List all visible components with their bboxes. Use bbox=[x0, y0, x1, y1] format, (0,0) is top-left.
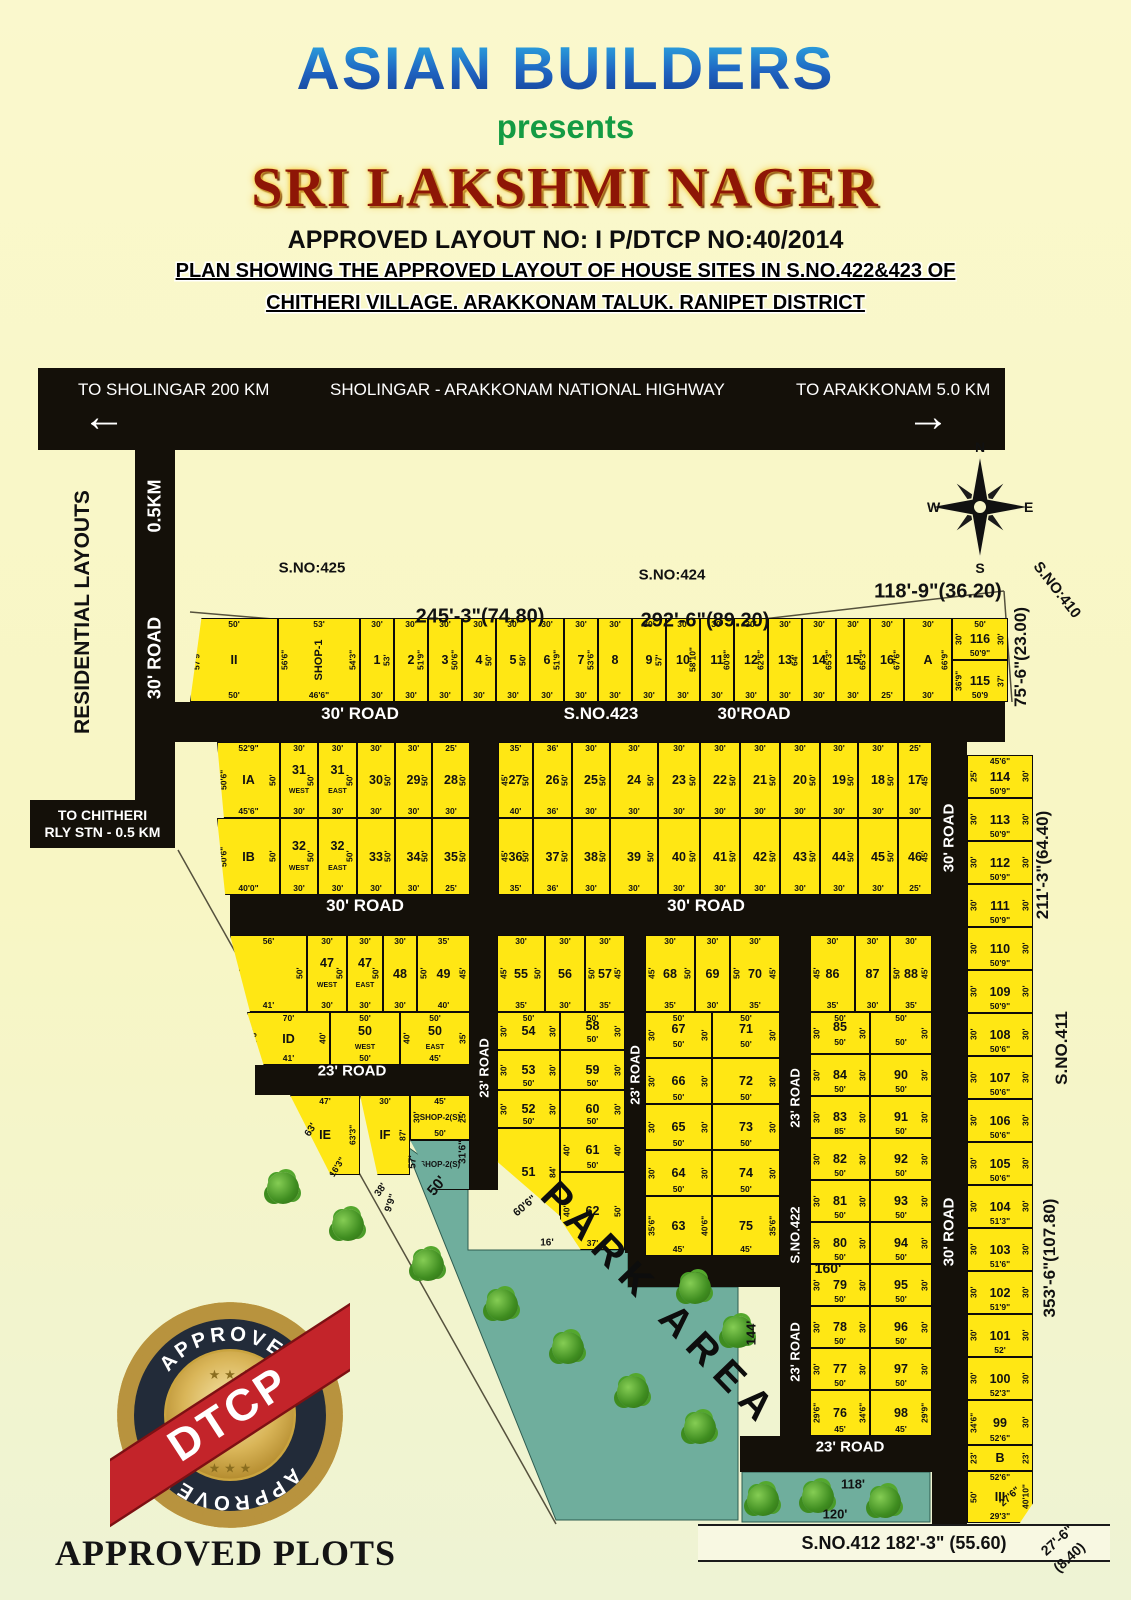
map-label: 120' bbox=[823, 1507, 848, 1522]
plot-42: 30'50'42 bbox=[740, 818, 780, 895]
map-label: 23' ROAD bbox=[477, 1038, 492, 1097]
plot-15: 30'30'65'3"15 bbox=[836, 618, 870, 702]
svg-text:S: S bbox=[975, 560, 984, 574]
plot-21: 30'30'50'21 bbox=[740, 742, 780, 818]
tree-icon bbox=[869, 1486, 901, 1518]
tree-icon bbox=[617, 1376, 649, 1408]
svg-text:E: E bbox=[1024, 499, 1033, 515]
plot-96: 50'30'96 bbox=[870, 1306, 932, 1348]
plot-60: 50'30'60 bbox=[560, 1090, 625, 1128]
plot-94: 50'30'94 bbox=[870, 1222, 932, 1264]
plot-IB: 40'0"50'6"50'IB bbox=[217, 818, 280, 895]
plot-64: 50'30'30'64 bbox=[645, 1150, 712, 1196]
plot-83: 85'30'30'83 bbox=[810, 1096, 870, 1138]
plot-2: 30'30'51'9"2 bbox=[394, 618, 428, 702]
tree-icon bbox=[486, 1289, 518, 1321]
plot-73: 50'30'73 bbox=[712, 1104, 780, 1150]
map-label: 118'-9"(36.20) bbox=[874, 581, 1002, 604]
map-label: 57' bbox=[408, 1155, 419, 1169]
layout-poster: ASIAN BUILDERS presents SRI LAKSHMI NAGE… bbox=[0, 0, 1131, 1600]
plot-24: 30'30'50'24 bbox=[610, 742, 658, 818]
plot-18: 30'30'50'18 bbox=[858, 742, 898, 818]
plot-SHOP-1: 53'46'6"56'6"54'3"SHOP-1 bbox=[278, 618, 360, 702]
plot-76: 45'29'6"34'6"76 bbox=[810, 1390, 870, 1436]
plot-32-west: 30'50'32WEST bbox=[280, 818, 318, 895]
plot-46: 25'45'46 bbox=[898, 818, 932, 895]
plot-98: 45'29'9"98 bbox=[870, 1390, 932, 1436]
map-label: 0.5KM bbox=[145, 479, 166, 532]
plot-44: 30'50'44 bbox=[820, 818, 858, 895]
map-label: 23' ROAD bbox=[318, 1063, 387, 1080]
map-label: 160' bbox=[815, 1260, 842, 1276]
map-label: 23' ROAD bbox=[628, 1045, 643, 1104]
plot-65: 50'30'30'65 bbox=[645, 1104, 712, 1150]
road-segment bbox=[470, 742, 498, 1190]
map-label: 30' ROAD bbox=[326, 896, 404, 916]
plot-31-east: 30'30'50'31EAST bbox=[318, 742, 357, 818]
map-label: 245'-3"(74.80) bbox=[416, 606, 545, 629]
plot-48: 30'30'48 bbox=[383, 935, 417, 1012]
plot-84: 50'30'30'84 bbox=[810, 1054, 870, 1096]
compass-rose-icon: N S W E bbox=[925, 442, 1035, 574]
plot-8: 30'30'8 bbox=[598, 618, 632, 702]
plot-85: 50'30'30'8550' bbox=[810, 1012, 870, 1054]
svg-text:W: W bbox=[927, 499, 941, 515]
plot-81: 50'30'30'81 bbox=[810, 1180, 870, 1222]
map-label: 211'-3"(64.40) bbox=[1033, 811, 1053, 920]
plot-5: 30'30'50'5 bbox=[496, 618, 530, 702]
plot-31-west: 30'30'50'31WEST bbox=[280, 742, 318, 818]
tree-icon bbox=[332, 1209, 364, 1241]
plot-57: 30'35'50'45'57 bbox=[585, 935, 625, 1012]
map-label: 30' ROAD bbox=[667, 896, 745, 916]
plot-97: 50'30'97 bbox=[870, 1348, 932, 1390]
map-label: 16' bbox=[540, 1238, 554, 1249]
svg-text:★ ★ ★: ★ ★ ★ bbox=[209, 1461, 252, 1476]
plot-59: 50'30'59 bbox=[560, 1050, 625, 1090]
plot-90: 50'30'90 bbox=[870, 1054, 932, 1096]
map-label: S.NO.422 bbox=[788, 1206, 803, 1263]
plot-69: 30'30'69 bbox=[695, 935, 730, 1012]
plot-A: 30'30'66'9"A bbox=[904, 618, 952, 702]
plot-110: 50'9"30'30'110 bbox=[967, 927, 1033, 970]
plot-115: 50'936'9"37'115 bbox=[952, 660, 1008, 702]
plot-108: 50'6"30'30'108 bbox=[967, 1013, 1033, 1056]
plot-80: 50'30'30'80 bbox=[810, 1222, 870, 1264]
map-label: 118' bbox=[841, 1477, 865, 1492]
plot-27: 35'40'45'50'27 bbox=[498, 742, 533, 818]
plot-25: 30'30'50'25 bbox=[572, 742, 610, 818]
plot-16: 30'25'67'6"16 bbox=[870, 618, 904, 702]
plot-39: 30'50'39 bbox=[610, 818, 658, 895]
map-label: 144' bbox=[744, 1321, 759, 1346]
plot-50-west: 50'50'50WEST bbox=[330, 1012, 400, 1065]
plot-109: 50'9"30'30'109 bbox=[967, 970, 1033, 1013]
plot-70: 30'35'50'45'70 bbox=[730, 935, 780, 1012]
plot-75: 45'35'6"75 bbox=[712, 1196, 780, 1256]
map-label: S.NO:425 bbox=[279, 560, 346, 577]
plot-74: 50'30'74 bbox=[712, 1150, 780, 1196]
highway-name-label: SHOLINGAR - ARAKKONAM NATIONAL HIGHWAY bbox=[330, 380, 725, 400]
plot-30: 30'30'50'30 bbox=[357, 742, 395, 818]
map-label: 31'6" bbox=[458, 1140, 469, 1164]
plot-68: 30'35'45'50'68 bbox=[645, 935, 695, 1012]
plot-1: 30'30'53'1 bbox=[360, 618, 394, 702]
plot-99: 52'6"34'6"30'99 bbox=[967, 1400, 1033, 1445]
plot-103: 51'6"30'30'103 bbox=[967, 1228, 1033, 1271]
map-label: 292'-6"(89.20) bbox=[641, 610, 770, 633]
plot-113: 50'9"30'30'113 bbox=[967, 798, 1033, 841]
tree-icon bbox=[412, 1249, 444, 1281]
svg-text:N: N bbox=[975, 442, 985, 455]
map-label: 75'-6"(23.00) bbox=[1011, 607, 1031, 707]
map-label: S.NO.423 bbox=[564, 704, 639, 724]
plot-41: 30'50'41 bbox=[700, 818, 740, 895]
arrow-right-icon: → bbox=[906, 402, 950, 432]
tree-icon bbox=[747, 1484, 779, 1516]
plot-47-east: 30'30'50'47EAST bbox=[347, 935, 383, 1012]
arrow-left-icon: ← bbox=[82, 402, 126, 432]
map-label: S.NO.411 bbox=[1052, 1011, 1072, 1085]
plot-92: 50'30'92 bbox=[870, 1138, 932, 1180]
plot-II: 50'50'57'9"II bbox=[190, 618, 278, 702]
plot-88: 30'35'50'45'88 bbox=[890, 935, 932, 1012]
plot-86: 30'35'45'86 bbox=[810, 935, 855, 1012]
map-label: 30' ROAD bbox=[941, 804, 958, 873]
approved-plots-text: APPROVED PLOTS bbox=[55, 1532, 396, 1574]
plot-36: 35'45'50'36 bbox=[498, 818, 533, 895]
plot-72: 50'30'72 bbox=[712, 1058, 780, 1104]
plot-54: 50'30'30'54 bbox=[497, 1012, 560, 1050]
plot-102: 51'9"30'30'102 bbox=[967, 1271, 1033, 1314]
map-label: RESIDENTIAL LAYOUTS bbox=[71, 490, 95, 734]
plot-37: 36'50'37 bbox=[533, 818, 572, 895]
plot-112: 50'9"30'30'112 bbox=[967, 841, 1033, 884]
plot-87: 30'30'87 bbox=[855, 935, 890, 1012]
plot-106: 50'6"30'30'106 bbox=[967, 1099, 1033, 1142]
plot-105: 50'6"30'30'105 bbox=[967, 1142, 1033, 1185]
plot-40: 30'50'40 bbox=[658, 818, 700, 895]
plot-56: 30'30'56 bbox=[545, 935, 585, 1012]
map-label: 23' ROAD bbox=[788, 1068, 803, 1127]
plot-B: 23'23'B bbox=[967, 1445, 1033, 1471]
plot-IA: 52'9"45'6"50'6"50'IA bbox=[217, 742, 280, 818]
map-label: 353'-6"(107.80) bbox=[1040, 1199, 1060, 1318]
plot-78: 50'30'30'78 bbox=[810, 1306, 870, 1348]
plot-19: 30'30'50'19 bbox=[820, 742, 858, 818]
map-label: 30' ROAD bbox=[321, 704, 399, 724]
chitheri-label: TO CHITHERIRLY STN - 0.5 KM bbox=[30, 807, 175, 841]
plot-53: 50'30'30'53 bbox=[497, 1050, 560, 1090]
plot-26: 36'36'50'26 bbox=[533, 742, 572, 818]
plot-20: 30'30'50'20 bbox=[780, 742, 820, 818]
highway-right-label: TO ARAKKONAM 5.0 KM bbox=[796, 380, 990, 400]
plot-3: 30'30'50'6"3 bbox=[428, 618, 462, 702]
plot-6: 30'30'51'9"6 bbox=[530, 618, 564, 702]
plot-49: 35'40'50'45'49 bbox=[417, 935, 470, 1012]
map-label: 30' ROAD bbox=[941, 1198, 958, 1267]
plot-71: 50'30'7150' bbox=[712, 1012, 780, 1058]
plot-101: 52'30'30'101 bbox=[967, 1314, 1033, 1357]
plot-77: 50'30'30'77 bbox=[810, 1348, 870, 1390]
plot-50-east: 50'45'40'35'50EAST bbox=[400, 1012, 470, 1065]
plot-43: 30'50'43 bbox=[780, 818, 820, 895]
plot-unlabeled: 50'30'50' bbox=[870, 1012, 932, 1054]
map-label: 30' ROAD bbox=[145, 617, 166, 699]
plot-52: 50'30'30'52 bbox=[497, 1090, 560, 1128]
plot-14: 30'30'65'3"14 bbox=[802, 618, 836, 702]
plot-82: 50'30'30'82 bbox=[810, 1138, 870, 1180]
plot-SHOP-2(S): 45'50'30'25'SHOP-2(S) bbox=[410, 1095, 470, 1140]
dtcp-approved-seal: APPROVED APPROVED ★ ★ ★ ★ ★ ★ DTCP bbox=[110, 1295, 350, 1535]
plot-58: 50'30'5850' bbox=[560, 1012, 625, 1050]
map-label: 30'ROAD bbox=[717, 704, 790, 724]
plot-67: 50'30'30'6750' bbox=[645, 1012, 712, 1058]
plot-22: 30'30'50'22 bbox=[700, 742, 740, 818]
plot-28: 25'30'50'28 bbox=[432, 742, 470, 818]
plot-7: 30'30'53'6"7 bbox=[564, 618, 598, 702]
plot-38: 30'50'38 bbox=[572, 818, 610, 895]
plot-17: 25'30'45'17 bbox=[898, 742, 932, 818]
tree-icon bbox=[267, 1172, 299, 1204]
map-label: S.NO:424 bbox=[639, 567, 706, 584]
plot-32-east: 30'50'32EAST bbox=[318, 818, 357, 895]
plot-63: 45'35'6"40'6"63 bbox=[645, 1196, 712, 1256]
plot-114: 45'6"50'9"25'30'114 bbox=[967, 755, 1033, 798]
plot-47-west: 30'30'50'47WEST bbox=[307, 935, 347, 1012]
plot-66: 50'30'30'66 bbox=[645, 1058, 712, 1104]
plot-13: 30'30'64'13 bbox=[768, 618, 802, 702]
plot-34: 30'50'34 bbox=[395, 818, 432, 895]
map-label: 23' ROAD bbox=[788, 1322, 803, 1381]
plot-61: 50'40'40'61 bbox=[560, 1128, 625, 1172]
plot-116: 50'50'9"30'30'116 bbox=[952, 618, 1008, 660]
plot-4: 30'30'50'4 bbox=[462, 618, 496, 702]
plot-55: 30'35'45'50'55 bbox=[497, 935, 545, 1012]
plot-35: 25'50'35 bbox=[432, 818, 470, 895]
plot-29: 30'30'50'29 bbox=[395, 742, 432, 818]
plot-107: 50'6"30'30'107 bbox=[967, 1056, 1033, 1099]
tree-icon bbox=[684, 1412, 716, 1444]
plot-91: 50'30'91 bbox=[870, 1096, 932, 1138]
plot-33: 30'50'33 bbox=[357, 818, 395, 895]
plot-45: 30'50'45 bbox=[858, 818, 898, 895]
plot-95: 50'30'95 bbox=[870, 1264, 932, 1306]
plot-23: 30'30'50'23 bbox=[658, 742, 700, 818]
tree-icon bbox=[552, 1332, 584, 1364]
plot-100: 52'3"30'30'100 bbox=[967, 1357, 1033, 1400]
plot-93: 50'30'93 bbox=[870, 1180, 932, 1222]
map-label: 23' ROAD bbox=[816, 1439, 885, 1456]
plot-111: 50'9"30'30'111 bbox=[967, 884, 1033, 927]
plot-104: 51'3"30'30'104 bbox=[967, 1185, 1033, 1228]
